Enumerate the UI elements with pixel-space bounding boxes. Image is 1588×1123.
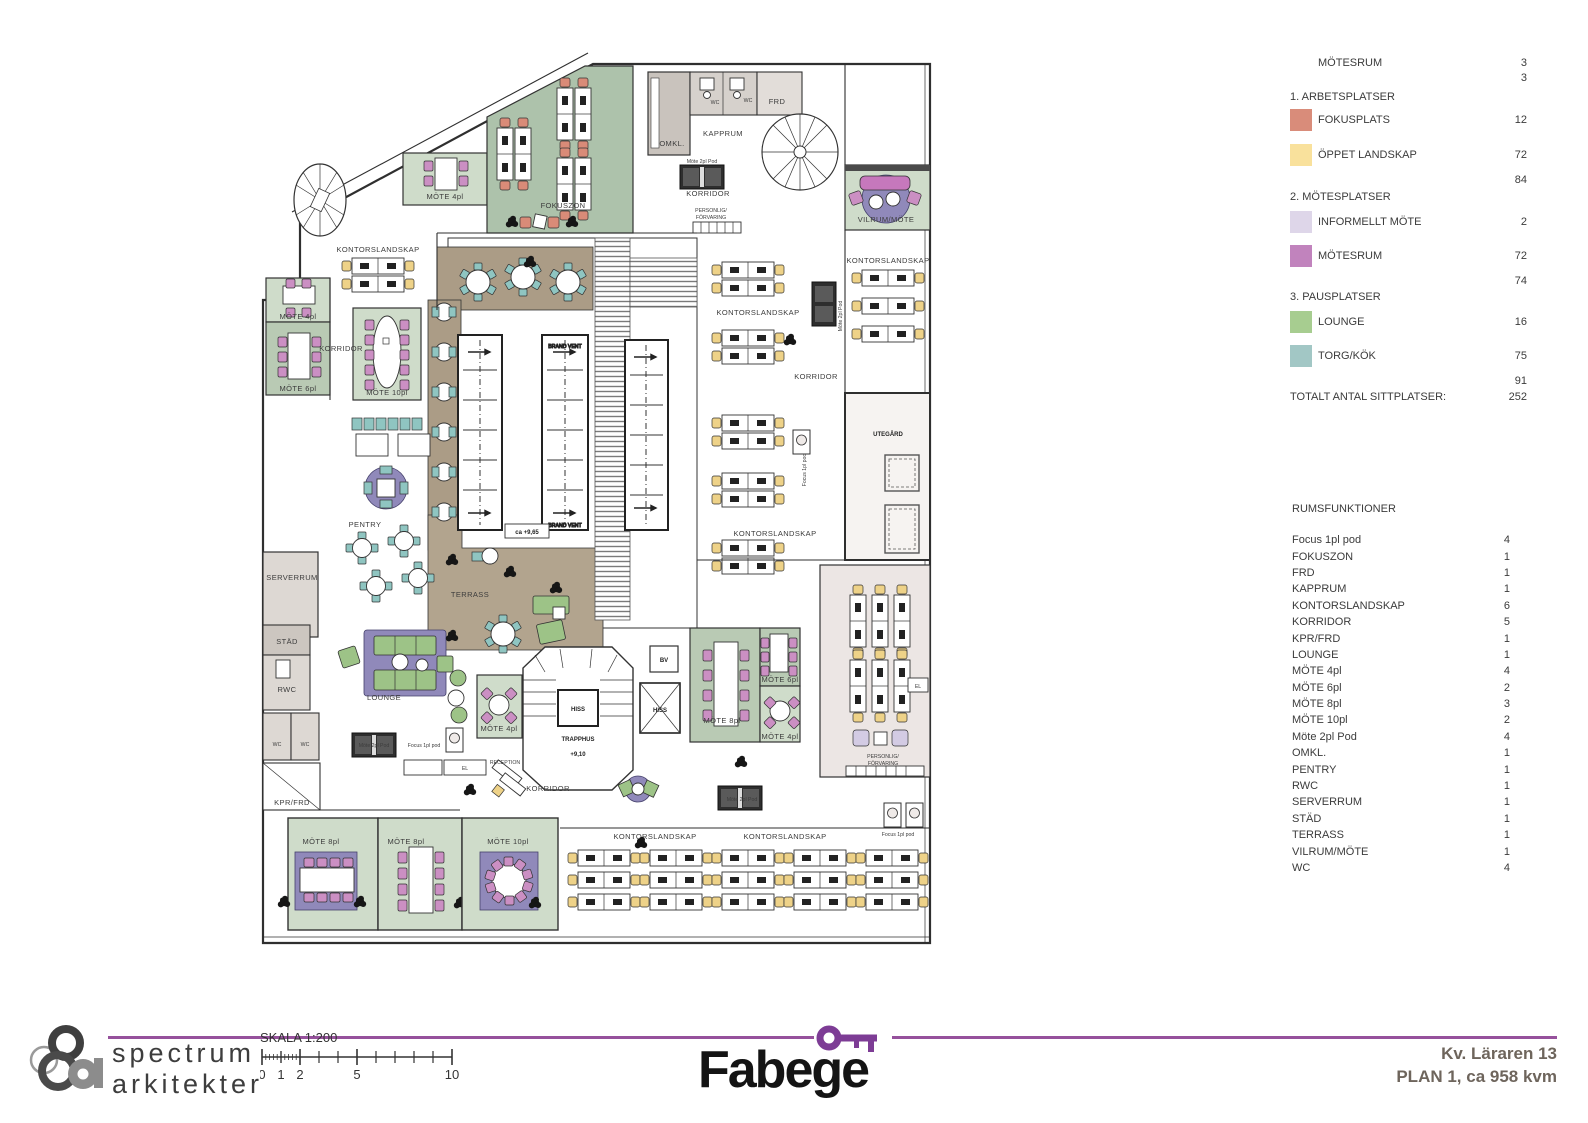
rf-row: TERRASS1: [1292, 827, 1510, 843]
pod-label: Focus 1pl pod: [882, 832, 915, 838]
room-label: RECEPTION: [490, 760, 521, 766]
project-plan: PLAN 1, ca 958 kvm: [1396, 1065, 1557, 1088]
zone-kontorslandskap-right-bottom: EL PERSONLIG/ FÖRVARING: [820, 565, 930, 777]
rf-row: MÖTE 4pl4: [1292, 663, 1510, 679]
utegard: UTEGÅRD: [845, 393, 930, 560]
room-label: MÖTE 8pl: [388, 837, 425, 846]
scale-tick-1: 1: [277, 1067, 284, 1082]
legend-label: LOUNGE: [1318, 316, 1364, 328]
legend-section-arbetsplatser: 1. ARBETSPLATSER: [1290, 86, 1538, 108]
room-label: MÖTE 4pl: [762, 732, 799, 741]
rf-row: SERVERRUM1: [1292, 794, 1510, 810]
room-label: EL: [915, 684, 921, 690]
room-label: WC: [301, 742, 310, 748]
rf-row: KAPPRUM1: [1292, 581, 1510, 597]
floor-plan: BRAND VENT BRAND VENT ca +9,65 MÖTE 4pl: [250, 45, 950, 955]
room-label: UTEGÅRD: [873, 431, 903, 438]
rf-row: MÖTE 10pl2: [1292, 712, 1510, 728]
room-label: TERRASS: [451, 590, 489, 599]
footer-rule-right: [892, 1036, 1557, 1039]
legend-total-value: 252: [1509, 391, 1538, 403]
room-label: MÖTE 8pl: [303, 837, 340, 846]
room-label: KONTORSLANDSKAP: [614, 832, 697, 841]
room-label: MÖTE 6pl: [280, 384, 317, 393]
legend-label: TORG/KÖK: [1318, 350, 1376, 362]
project-name: Kv. Läraren 13: [1396, 1042, 1557, 1065]
room-label: TRAPPHUS: [561, 737, 594, 743]
legend-section-title: 1. ARBETSPLATSER: [1290, 91, 1395, 103]
corridor-label: KORRIDOR: [686, 189, 730, 198]
legend-value: 75: [1515, 350, 1538, 362]
rf-row: KONTORSLANDSKAP6: [1292, 598, 1510, 614]
pod-label: Focus 1pl pod: [408, 743, 441, 749]
room-mote6-left: MÖTE 6pl: [266, 322, 330, 395]
zone-kontorslandskap-right-top: KONTORSLANDSKAP: [847, 256, 930, 342]
skylight-band-top: [630, 258, 697, 307]
legend-label: FOKUSPLATS: [1318, 114, 1390, 126]
scale-tick-2: 2: [296, 1067, 303, 1082]
room-label: STÄD: [276, 637, 298, 646]
room-label: MÖTE 4pl: [280, 312, 317, 321]
legend-total-row: TOTALT ANTAL SITTPLATSER: 252: [1290, 386, 1538, 408]
fabege-wordmark: Fabege: [698, 1040, 868, 1100]
rf-row: MÖTE 6pl2: [1292, 680, 1510, 696]
scale-tick-10: 10: [445, 1067, 459, 1082]
corridor-label: KORRIDOR: [526, 784, 570, 793]
drawing-sheet: BRAND VENT BRAND VENT ca +9,65 MÖTE 4pl: [0, 0, 1588, 1123]
room-label: KONTORSLANDSKAP: [717, 308, 800, 317]
room-label: RWC: [278, 685, 297, 694]
informellt-mote-swatch: [1290, 211, 1312, 233]
room-label: MÖTE 10pl: [366, 388, 408, 397]
room-label: KPR/FRD: [274, 798, 310, 807]
room-label: KONTORSLANDSKAP: [337, 245, 420, 254]
legend-label: ÖPPET LANDSKAP: [1318, 149, 1417, 161]
room-label: WC: [711, 100, 720, 106]
hiss-shaft: HISS: [640, 683, 680, 733]
legend-value: 3: [1521, 72, 1538, 84]
room-mote8-bottom-a: MÖTE 8pl: [278, 818, 378, 930]
trapphus: HISS TRAPPHUS +9,10: [523, 647, 633, 790]
rf-row: WC4: [1292, 860, 1510, 876]
bv-room: BV: [650, 646, 678, 672]
legend-value: 84: [1515, 174, 1538, 186]
legend-total-label: TOTALT ANTAL SITTPLATSER:: [1290, 391, 1446, 403]
rf-row: KORRIDOR5: [1292, 614, 1510, 630]
oval-stair: [294, 164, 346, 236]
room-label: KAPPRUM: [703, 129, 743, 138]
room-label: EL: [462, 766, 468, 772]
room-mote8-center: MÖTE 8pl: [690, 628, 760, 742]
rf-row: OMKL.1: [1292, 745, 1510, 761]
room-mote4-top: MÖTE 4pl: [403, 153, 487, 205]
oppet-landskap-swatch: [1290, 144, 1312, 166]
rf-row: STÄD1: [1292, 811, 1510, 827]
scale-block: SKALA 1:200 0 1 2 5 10: [260, 1030, 470, 1090]
legend-row-torg-kok: TORG/KÖK 75: [1290, 345, 1538, 367]
room-mote4-center: MÖTE 4pl: [477, 675, 522, 738]
rf-row: RWC1: [1292, 778, 1510, 794]
legend-section-pausplatser: 3. PAUSPLATSER: [1290, 286, 1538, 308]
room-label: KONTORSLANDSKAP: [847, 256, 930, 265]
spiral-stair: [762, 114, 838, 190]
pod-label: Möte 2pl Pod: [359, 743, 390, 749]
room-mote10-left: MÖTE 10pl: [353, 308, 421, 400]
rf-row: MÖTE 8pl3: [1292, 696, 1510, 712]
spectrum-logo: [28, 1022, 108, 1107]
legend-section-title: 2. MÖTESPLATSER: [1290, 191, 1391, 203]
lockers-label: PERSONLIG/: [867, 754, 899, 760]
corridor-label: KORRIDOR: [794, 372, 838, 381]
legend-row-oppet-landskap: ÖPPET LANDSKAP 72: [1290, 144, 1538, 166]
legend-section-motesplatser: 2. MÖTESPLATSER: [1290, 186, 1538, 208]
legend-section-title: 3. PAUSPLATSER: [1290, 291, 1381, 303]
legend-row-fokusplats: FOKUSPLATS 12: [1290, 109, 1538, 131]
hiss-label: HISS: [571, 707, 585, 713]
lounge-swatch: [1290, 311, 1312, 333]
room-functions-list: RUMSFUNKTIONER Focus 1pl pod4 FOKUSZON1 …: [1292, 503, 1510, 876]
svg-text:ca +9,65: ca +9,65: [515, 530, 539, 536]
level-tag: ca +9,65: [505, 524, 549, 538]
legend-row-lounge: LOUNGE 16: [1290, 311, 1538, 333]
room-label: BV: [660, 658, 668, 664]
room-label: KONTORSLANDSKAP: [744, 832, 827, 841]
lockers-label: PERSONLIG/: [695, 208, 727, 214]
scale-tick-0: 0: [260, 1067, 266, 1082]
pods-center: EL Möte 2pl Pod Focus 1pl pod: [352, 728, 486, 775]
legend-value: 72: [1515, 250, 1538, 262]
rf-row: LOUNGE1: [1292, 647, 1510, 663]
room-label: SERVERRUM: [266, 573, 317, 582]
brand-vent-shafts: BRAND VENT BRAND VENT: [458, 335, 668, 530]
rf-row: VILRUM/MÖTE1: [1292, 843, 1510, 859]
rf-row: FRD1: [1292, 565, 1510, 581]
room-vilrum: VILRUM/MÖTE: [845, 165, 930, 230]
pod-label: Focus 1pl pod: [802, 454, 808, 487]
pod-label: Möte 2pl Pod: [727, 797, 758, 803]
torg-kok-swatch: [1290, 345, 1312, 367]
legend-value: 2: [1521, 216, 1538, 228]
scale-bar: 0 1 2 5 10: [260, 1045, 470, 1085]
zone-kontorslandskap-mid: KONTORSLANDSKAP Möte 2pl Pod KORRIDOR KO…: [712, 262, 844, 574]
room-label: LOUNGE: [367, 693, 401, 702]
motesrum-swatch: [1290, 245, 1312, 267]
legend-row-informellt-mote: INFORMELLT MÖTE 2: [1290, 211, 1538, 233]
brand-vent-label: BRAND VENT: [548, 523, 582, 529]
hiss-label: HISS: [653, 708, 667, 714]
level-label: +9,10: [570, 752, 586, 758]
room-label: OMKL.: [659, 139, 684, 148]
zone-pentry: PENTRY: [346, 418, 434, 602]
legend-value: 16: [1515, 316, 1538, 328]
room-label: MÖTE 4pl: [481, 724, 518, 733]
firm-line-1: spectrum: [112, 1038, 263, 1069]
room-label: MÖTE 4pl: [427, 192, 464, 201]
legend-row-motesrum: MÖTESRUM 72: [1290, 245, 1538, 267]
rf-row: KPR/FRD1: [1292, 630, 1510, 646]
rf-row: FOKUSZON1: [1292, 548, 1510, 564]
room-label: FRD: [769, 97, 786, 106]
room-label: MÖTE 8pl: [704, 716, 741, 725]
scale-tick-5: 5: [353, 1067, 360, 1082]
corridor-label: KORRIDOR: [319, 344, 363, 353]
rf-row: Möte 2pl Pod4: [1292, 729, 1510, 745]
pod-label: Möte 2pl Pod: [838, 301, 844, 332]
legend-label: MÖTESRUM: [1318, 250, 1382, 262]
room-label: PENTRY: [349, 520, 382, 529]
room-label: WC: [273, 742, 282, 748]
seat-count-legend: MÖTESRUM 3 3 1. ARBETSPLATSER FOKUSPLATS…: [1290, 50, 1538, 422]
legend-label: INFORMELLT MÖTE: [1318, 216, 1422, 228]
room-mote4-right: MÖTE 4pl: [760, 686, 800, 742]
room-mote10-bottom: MÖTE 10pl: [462, 818, 558, 930]
firm-name: spectrum arkitekter: [112, 1038, 263, 1100]
room-label: WC: [744, 98, 753, 104]
room-label: VILRUM/MÖTE: [858, 215, 915, 224]
service-rooms-left: SERVERRUM STÄD RWC WC WC KPR/FRD: [263, 552, 320, 810]
lockers-label: FÖRVARING: [696, 214, 726, 221]
room-label: MÖTE 6pl: [762, 675, 799, 684]
informal-seat-center: [618, 776, 659, 802]
brand-vent-label: BRAND VENT: [548, 344, 582, 350]
room-functions-title: RUMSFUNKTIONER: [1292, 503, 1510, 515]
room-mote8-bottom-b: MÖTE 8pl: [378, 818, 466, 930]
legend-value: 72: [1515, 149, 1538, 161]
zone-kontorslandskap-topleft: KONTORSLANDSKAP: [337, 245, 420, 292]
rf-row: Focus 1pl pod4: [1292, 532, 1510, 548]
room-mote6-right: MÖTE 6pl: [760, 628, 800, 686]
room-label: FOKUSZON: [541, 201, 586, 210]
firm-line-2: arkitekter: [112, 1069, 263, 1100]
fokusplats-swatch: [1290, 109, 1312, 131]
project-title-block: Kv. Läraren 13 PLAN 1, ca 958 kvm: [1396, 1042, 1557, 1088]
rf-row: PENTRY1: [1292, 761, 1510, 777]
legend-value: 12: [1515, 114, 1538, 126]
scale-label: SKALA 1:200: [260, 1030, 470, 1045]
room-fokuszon: FOKUSZON: [487, 66, 633, 233]
room-mote4-left: MÖTE 4pl: [266, 278, 330, 322]
pod-label: Möte 2pl Pod: [687, 159, 718, 165]
room-label: MÖTE 10pl: [487, 837, 529, 846]
room-label: KONTORSLANDSKAP: [734, 529, 817, 538]
